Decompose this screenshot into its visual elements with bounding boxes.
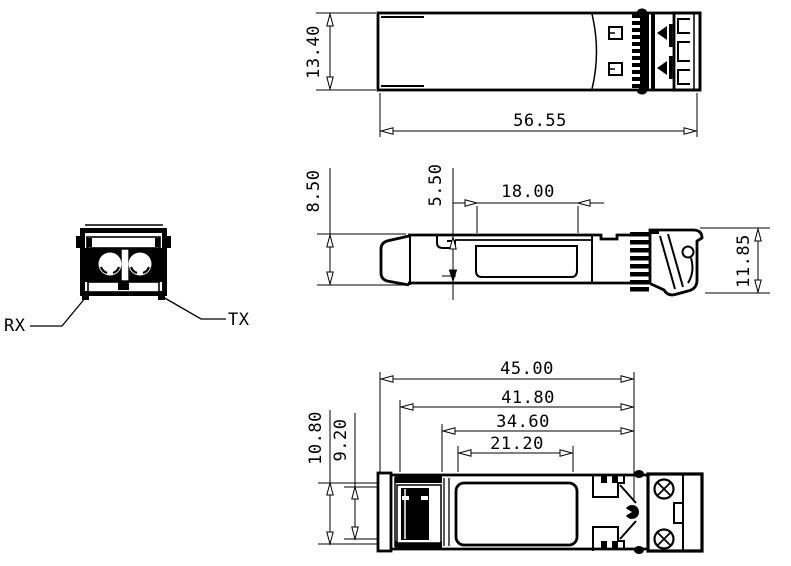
dim-label-length-2: 41.80 [501, 388, 555, 408]
rx-leader-line [30, 297, 86, 326]
side-view-top-line [408, 235, 631, 239]
top-view-rear-connector [651, 13, 700, 90]
top-view-slots [609, 27, 622, 75]
dim-label-latch-height: 11.85 [734, 234, 754, 288]
dim-56-55: 56.55 [380, 93, 697, 137]
cage-latch-cutouts [593, 475, 639, 551]
dim-label-overall-length: 45.00 [500, 359, 554, 379]
dim-label-recess-length: 18.00 [501, 182, 555, 202]
dim-label-side-height: 8.50 [304, 170, 324, 213]
dim-label-length-3: 34.60 [496, 412, 550, 432]
side-view: 8.50 5.50 18.00 11.85 [304, 164, 770, 300]
dim-8-50: 8.50 [304, 168, 406, 285]
bottom-view: 45.00 41.80 34.60 21.20 10.80 [306, 359, 702, 554]
top-view-nose-edge-lines [381, 17, 424, 86]
top-view-arc-line [592, 14, 597, 89]
latch-lever-lines [660, 234, 683, 289]
drawing-sheet: 13.40 56.55 [0, 0, 791, 566]
dim-21-20: 21.20 [458, 434, 573, 472]
sfp-transceiver-mechanical-drawing: 13.40 56.55 [0, 0, 791, 566]
latch-pivot-hole [683, 247, 694, 258]
tx-leader-line [163, 297, 226, 319]
dim-label-width-outer: 10.80 [306, 411, 326, 465]
dim-13-40: 13.40 [304, 13, 376, 90]
card-edge-connector [397, 485, 441, 543]
dim-9-20: 9.20 [331, 413, 378, 539]
screw-bottom [655, 530, 674, 549]
side-view-label-recess [476, 246, 577, 277]
front-view: RX TX [4, 225, 250, 336]
rx-label: RX [4, 316, 26, 336]
dim-label-label-length: 21.20 [490, 434, 544, 454]
side-view-nose [381, 236, 409, 285]
tx-label: TX [228, 310, 250, 330]
dim-5-50: 5.50 [426, 164, 457, 300]
rx-port [99, 253, 122, 276]
dim-18-00: 18.00 [453, 182, 604, 233]
dim-label-width-inner: 9.20 [331, 419, 351, 462]
bottom-view-front-flange [378, 473, 391, 551]
tx-port [129, 253, 152, 276]
dim-11-85: 11.85 [700, 228, 770, 293]
screw-top [655, 480, 674, 499]
dim-label-recess-offset: 5.50 [426, 164, 446, 207]
dim-label-top-length: 56.55 [513, 111, 567, 131]
label-area [456, 483, 577, 545]
top-view: 13.40 56.55 [304, 9, 700, 138]
side-view-latch [650, 230, 702, 295]
dim-label-top-width: 13.40 [304, 25, 324, 79]
side-view-emi-fingers [630, 232, 649, 292]
bottom-view-rear-block [648, 474, 702, 551]
emi-finger-strip [632, 9, 649, 95]
